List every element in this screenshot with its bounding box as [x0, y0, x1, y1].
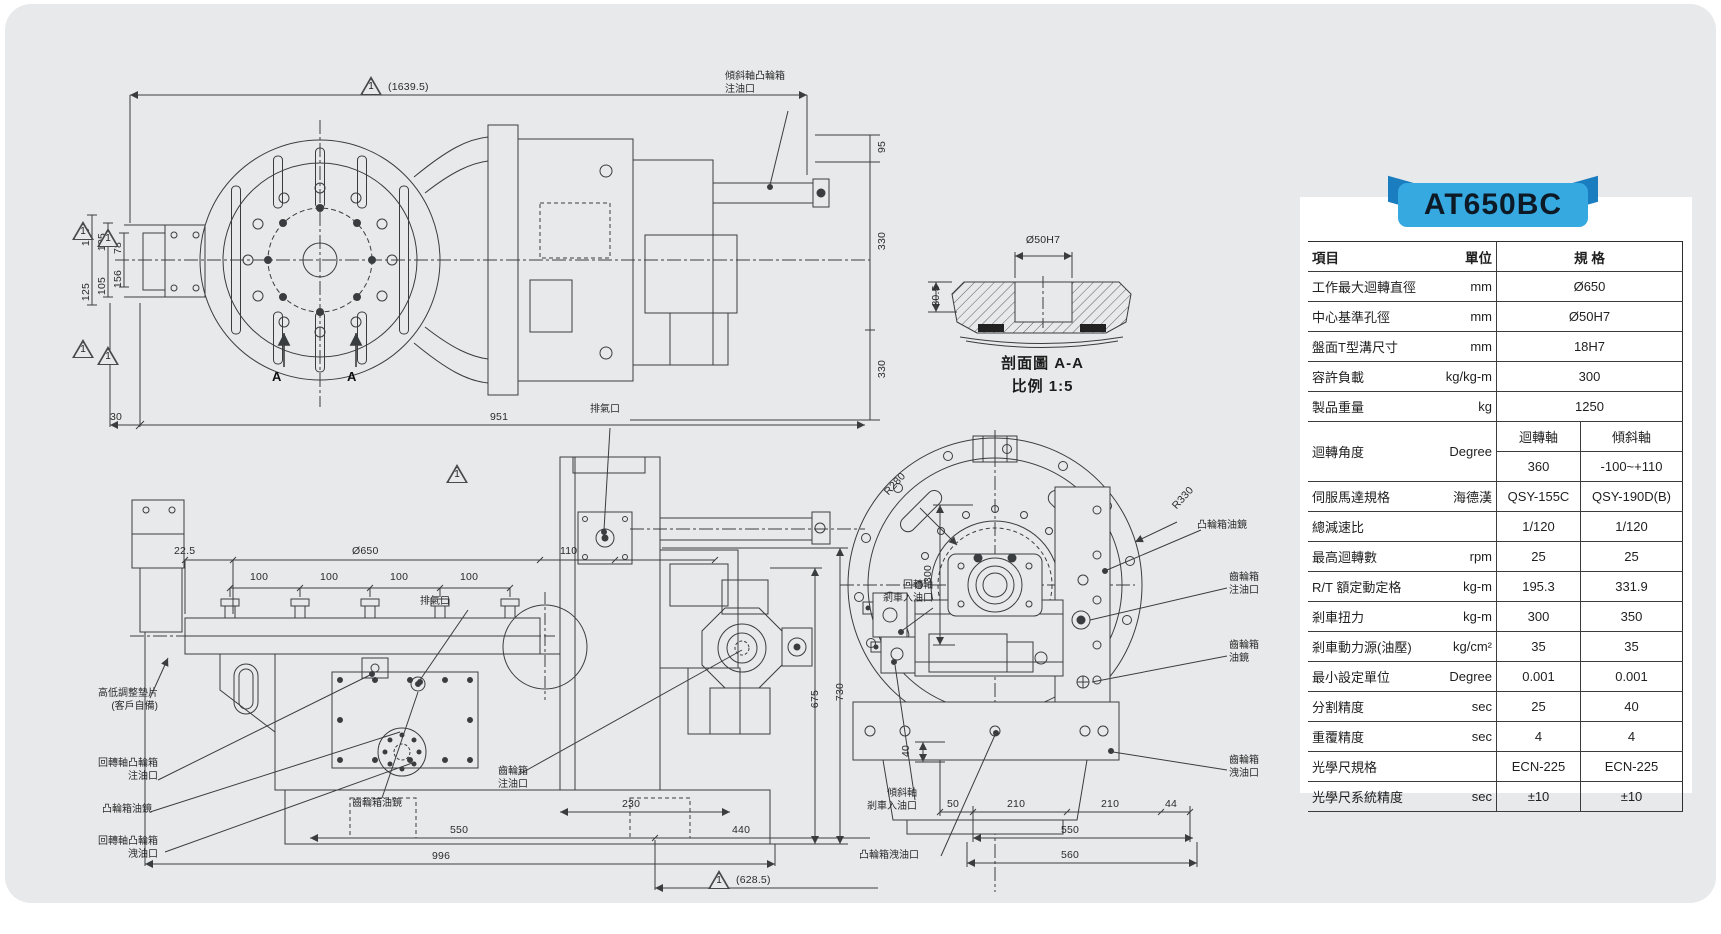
col-spec-header: 規 格 [1497, 242, 1683, 272]
table-row: R/T 額定動定格kg-m195.3331.9 [1308, 572, 1683, 602]
side-view: 22.5 Ø650 110 100 100 100 100 675 730 23… [70, 400, 885, 895]
side-view-drawing [70, 400, 885, 895]
front-view: R280 R330 300 40 50 210 210 44 550 560 回… [845, 430, 1285, 900]
dim-50: 50 [947, 798, 959, 810]
dim-right-330b: 330 [876, 352, 888, 386]
dim-overall-length: (1639.5) [388, 81, 429, 93]
callout-vent-port-2: 排氣口 [420, 596, 450, 609]
row-value: 300 [1497, 602, 1581, 632]
rev-flag: 1 [446, 464, 468, 483]
row-value: ±10 [1581, 782, 1683, 812]
table-row: 光學尺系統精度sec±10±10 [1308, 782, 1683, 812]
dim-depth: 30.5 [930, 279, 942, 313]
callout-rotary-brake-oil-inlet: 回轉軸 剎車入油口 [851, 580, 933, 605]
row-value: 0.001 [1497, 662, 1581, 692]
dim-550: 550 [450, 824, 468, 836]
row-value: 25 [1497, 692, 1581, 722]
row-item: 光學尺系統精度 [1312, 787, 1403, 806]
section-scale: 比例 1:5 [935, 375, 1150, 396]
row-item: 製品重量 [1312, 397, 1364, 416]
dim-210: 210 [1007, 798, 1025, 810]
dim-230: 230 [622, 798, 640, 810]
row-value: ECN-225 [1581, 752, 1683, 782]
table-row: 伺服馬達規格海德漢QSY-155CQSY-190D(B) [1308, 482, 1683, 512]
table-row: 重覆精度sec44 [1308, 722, 1683, 752]
row-value: 300 [1497, 362, 1683, 392]
dim-675: 675 [809, 682, 821, 716]
row-value: 0.001 [1581, 662, 1683, 692]
row-unit: kg/kg-m [1446, 369, 1492, 384]
row-item: 盤面T型溝尺寸 [1312, 337, 1398, 356]
callout-gear-fill-port: 齒輪箱 注油口 [498, 766, 528, 791]
row-unit: Degree [1449, 444, 1492, 459]
dim-bore: Ø50H7 [1008, 234, 1078, 246]
dim-left-105b: 105 [96, 269, 108, 303]
row-value: 25 [1497, 542, 1581, 572]
rev-flag: 1 [72, 339, 94, 358]
row-value: ±10 [1497, 782, 1581, 812]
dim-550: 550 [1045, 824, 1095, 836]
callout-tilt-brake-oil-inlet: 傾斜軸 剎車入油口 [845, 788, 917, 813]
row-unit: mm [1470, 339, 1492, 354]
row-unit: 海德漢 [1453, 487, 1492, 506]
dim-100: 100 [320, 571, 338, 583]
dim-dia650: Ø650 [352, 545, 379, 557]
row-unit: kg-m [1463, 579, 1492, 594]
rev-flag: 1 [360, 76, 382, 95]
model-banner: AT650BC [1398, 183, 1588, 227]
rev-flag: 1 [97, 346, 119, 365]
row-value: 4 [1497, 722, 1581, 752]
row-unit: kg/cm² [1453, 639, 1492, 654]
row-value: 350 [1581, 602, 1683, 632]
row-value: 360 [1497, 452, 1581, 482]
callout-tilt-cam-fill-port: 傾斜軸凸輪箱 注油口 [725, 71, 855, 96]
callout-cam-drain-port: 凸輪箱洩油口 [859, 850, 919, 863]
rev-flag: 1 [708, 870, 730, 889]
row-unit: sec [1472, 729, 1492, 744]
dim-left-125b: 125 [80, 275, 92, 309]
plan-view-drawing [70, 75, 915, 435]
rev-flag: 1 [72, 221, 94, 240]
row-value: 331.9 [1581, 572, 1683, 602]
table-row: 光學尺規格ECN-225ECN-225 [1308, 752, 1683, 782]
table-row: 工作最大迴轉直徑mmØ650 [1308, 272, 1683, 302]
row-item: R/T 額定動定格 [1312, 577, 1401, 596]
table-row: 中心基準孔徑mmØ50H7 [1308, 302, 1683, 332]
col-item-header: 項目 [1312, 247, 1339, 267]
row-item: 容許負載 [1312, 367, 1364, 386]
dim-100: 100 [390, 571, 408, 583]
row-unit: sec [1472, 699, 1492, 714]
table-row: 迴轉角度Degree 迴轉軸 傾斜軸 [1308, 422, 1683, 452]
dim-right-95: 95 [876, 130, 888, 164]
dim-996: 996 [432, 850, 450, 862]
row-item: 剎車動力源(油壓) [1312, 637, 1412, 656]
row-value: 1250 [1497, 392, 1683, 422]
row-item: 重覆精度 [1312, 727, 1364, 746]
row-unit: mm [1470, 309, 1492, 324]
col-unit-header: 單位 [1465, 247, 1492, 267]
row-item: 中心基準孔徑 [1312, 307, 1390, 326]
table-row: 剎車扭力kg-m300350 [1308, 602, 1683, 632]
row-unit: sec [1472, 789, 1492, 804]
dim-100: 100 [250, 571, 268, 583]
callout-height-shim: 高低調整墊片 (客戶自備) [70, 688, 158, 713]
row-item: 總減速比 [1312, 517, 1364, 536]
rev-flag: 1 [97, 228, 119, 247]
row-value: ECN-225 [1497, 752, 1581, 782]
plan-view: 1 (1639.5) 傾斜軸凸輪箱 注油口 125 105 78 156 105… [70, 75, 915, 435]
row-value: 25 [1581, 542, 1683, 572]
callout-gear-drain-port: 齒輪箱 洩油口 [1229, 755, 1259, 780]
callout-cam-oil-sight: 凸輪箱油鏡 [70, 804, 152, 817]
datasheet-page: { "colors": { "accent": "#36a9e1", "acce… [0, 0, 1721, 934]
row-item: 光學尺規格 [1312, 757, 1377, 776]
row-value: 195.3 [1497, 572, 1581, 602]
row-value: 4 [1581, 722, 1683, 752]
section-mark-a-right: A [347, 369, 356, 384]
table-row: 總減速比1/1201/120 [1308, 512, 1683, 542]
table-row: 最小設定單位Degree0.0010.001 [1308, 662, 1683, 692]
row-item: 迴轉角度 [1312, 442, 1364, 461]
row-unit: rpm [1470, 549, 1492, 564]
dim-100: 100 [460, 571, 478, 583]
dim-110: 110 [560, 545, 577, 557]
row-unit: kg [1478, 399, 1492, 414]
section-view: Ø50H7 30.5 剖面圖 A-A 比例 1:5 [900, 218, 1190, 403]
table-row: 盤面T型溝尺寸mm18H7 [1308, 332, 1683, 362]
row-item: 伺服馬達規格 [1312, 487, 1390, 506]
dim-560: 560 [1045, 849, 1095, 861]
callout-vent-port: 排氣口 [590, 404, 620, 417]
dim-210: 210 [1101, 798, 1119, 810]
table-row: 分割精度sec2540 [1308, 692, 1683, 722]
section-mark-a-left: A [272, 369, 281, 384]
callout-gear-oil-sight: 齒輪箱油鏡 [352, 798, 402, 811]
section-title: 剖面圖 A-A [935, 352, 1150, 373]
row-value: Ø50H7 [1497, 302, 1683, 332]
callout-gear-oil-sight: 齒輪箱 油鏡 [1229, 640, 1259, 665]
dim-40: 40 [900, 734, 912, 768]
dim-right-330a: 330 [876, 224, 888, 258]
row-value: 1/120 [1497, 512, 1581, 542]
row-item: 最小設定單位 [1312, 667, 1390, 686]
row-value: 35 [1497, 632, 1581, 662]
row-value: 18H7 [1497, 332, 1683, 362]
row-value: QSY-155C [1497, 482, 1581, 512]
spec-header-row: 項目單位 規 格 [1308, 242, 1683, 272]
dim-44: 44 [1165, 798, 1177, 810]
row-unit: Degree [1449, 669, 1492, 684]
dim-440: 440 [732, 824, 750, 836]
table-row: 剎車動力源(油壓)kg/cm²3535 [1308, 632, 1683, 662]
row-value: QSY-190D(B) [1581, 482, 1683, 512]
table-row: 製品重量kg1250 [1308, 392, 1683, 422]
row-value: 40 [1581, 692, 1683, 722]
axis-header-rotary: 迴轉軸 [1497, 422, 1581, 452]
row-item: 剎車扭力 [1312, 607, 1364, 626]
row-item: 工作最大迴轉直徑 [1312, 277, 1416, 296]
axis-header-tilt: 傾斜軸 [1581, 422, 1683, 452]
dim-left-156: 156 [112, 262, 124, 296]
row-value: 35 [1581, 632, 1683, 662]
row-item: 最高迴轉數 [1312, 547, 1377, 566]
callout-gear-fill-port: 齒輪箱 注油口 [1229, 572, 1259, 597]
row-value: Ø650 [1497, 272, 1683, 302]
row-unit: kg-m [1463, 609, 1492, 624]
table-row: 最高迴轉數rpm2525 [1308, 542, 1683, 572]
callout-cam-oil-sight: 凸輪箱油鏡 [1197, 520, 1247, 533]
row-value: 1/120 [1581, 512, 1683, 542]
row-unit: mm [1470, 279, 1492, 294]
row-item: 分割精度 [1312, 697, 1364, 716]
callout-rotary-cam-fill-port: 回轉軸凸輪箱 注油口 [70, 758, 158, 783]
row-value: -100~+110 [1581, 452, 1683, 482]
dim-22-5: 22.5 [174, 545, 195, 557]
dim-628-5: (628.5) [736, 874, 771, 886]
spec-table: 項目單位 規 格 工作最大迴轉直徑mmØ650 中心基準孔徑mmØ50H7 盤面… [1308, 241, 1683, 812]
callout-rotary-cam-drain-port: 回轉軸凸輪箱 洩油口 [70, 836, 158, 861]
table-row: 容許負載kg/kg-m300 [1308, 362, 1683, 392]
